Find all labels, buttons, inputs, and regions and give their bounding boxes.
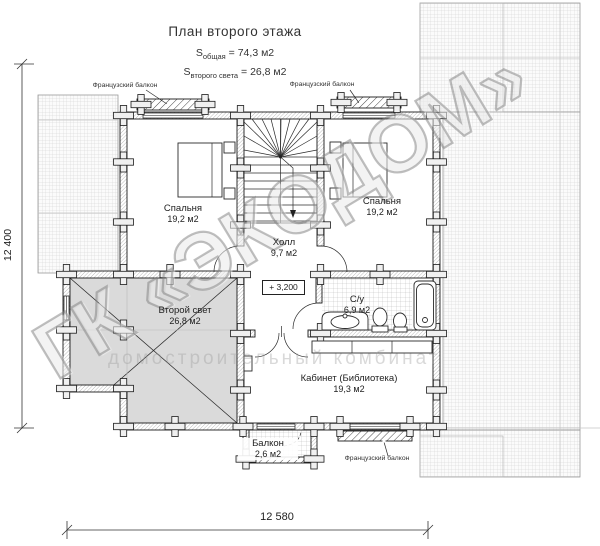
room-name: Холл	[234, 237, 334, 248]
room-area: 26,8 м2	[135, 316, 235, 327]
office-furniture	[244, 341, 432, 371]
french-balcony-label-top-left: Французский балкон	[75, 82, 175, 90]
room-label-second-light: Второй свет 26,8 м2	[135, 305, 235, 327]
room-label-balcony: Балкон 2,6 м2	[238, 438, 298, 460]
second-light-void	[66, 278, 240, 423]
radiator	[244, 356, 252, 371]
french-balcony-label-top-right: Французский балкон	[272, 81, 372, 89]
staircase	[244, 119, 317, 223]
room-label-bathroom: С/у 6,9 м2	[327, 294, 387, 316]
room-name: Спальня	[332, 196, 432, 207]
room-area: 6,9 м2	[327, 305, 387, 316]
room-area: 2,6 м2	[238, 449, 298, 460]
room-name: С/у	[327, 294, 387, 305]
room-area: 19,2 м2	[133, 214, 233, 225]
room-label-bedroom-left: Спальня 19,2 м2	[133, 203, 233, 225]
bookshelf	[312, 341, 432, 353]
dimension-left: 12 400	[2, 215, 14, 275]
area-subscript: общая	[203, 52, 226, 61]
elevation-mark: + 3,200	[262, 280, 305, 295]
room-name: Балкон	[238, 438, 298, 449]
total-area-line: Sобщая = 74,3 м2	[145, 47, 325, 61]
dimension-bottom: 12 580	[242, 511, 312, 523]
floor-plan-canvas: домостроительный комбинат ГК «ЭКОДОМ» Пл…	[0, 0, 600, 546]
room-label-bedroom-right: Спальня 19,2 м2	[332, 196, 432, 218]
page-title: План второго этажа	[145, 24, 325, 40]
second-light-area-line: Sвторого света = 26,8 м2	[145, 66, 325, 80]
french-balcony-label-bottom: Французский балкон	[327, 455, 427, 463]
area-value: = 74,3 м2	[226, 47, 274, 59]
room-name: Кабинет (Библиотека)	[269, 373, 429, 384]
room-area: 9,7 м2	[234, 248, 334, 259]
room-label-office: Кабинет (Библиотека) 19,3 м2	[269, 373, 429, 395]
room-area: 19,3 м2	[269, 384, 429, 395]
room-name: Спальня	[133, 203, 233, 214]
area-subscript: второго света	[191, 71, 239, 80]
area-prefix: S	[196, 47, 203, 59]
area-value: = 26,8 м2	[238, 66, 286, 78]
bed-left	[178, 142, 235, 199]
room-label-hall: Холл 9,7 м2	[234, 237, 334, 259]
room-area: 19,2 м2	[332, 207, 432, 218]
room-name: Второй свет	[135, 305, 235, 316]
bed-right	[330, 142, 387, 199]
area-prefix: S	[183, 66, 190, 78]
